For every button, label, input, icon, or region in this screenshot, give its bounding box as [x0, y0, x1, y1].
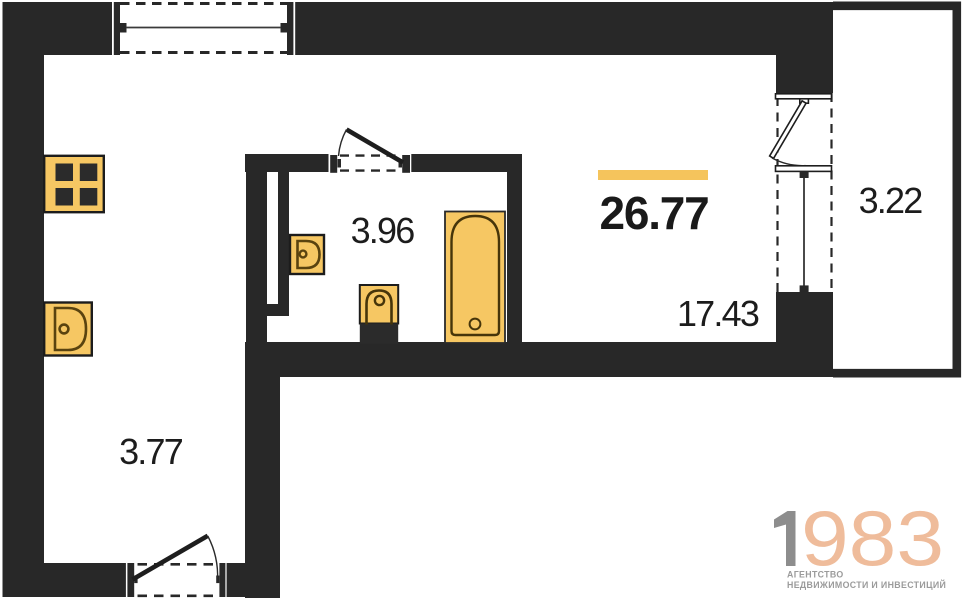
svg-text:3.96: 3.96: [351, 210, 415, 251]
svg-text:АГЕНТСТВО: АГЕНТСТВО: [787, 570, 844, 580]
svg-text:НЕДВИЖИМОСТИ И ИНВЕСТИЦИЙ: НЕДВИЖИМОСТИ И ИНВЕСТИЦИЙ: [787, 579, 946, 590]
svg-text:26.77: 26.77: [599, 187, 708, 239]
svg-text:17.43: 17.43: [677, 293, 759, 334]
svg-text:3.77: 3.77: [119, 431, 183, 472]
svg-text:3.22: 3.22: [859, 180, 923, 221]
